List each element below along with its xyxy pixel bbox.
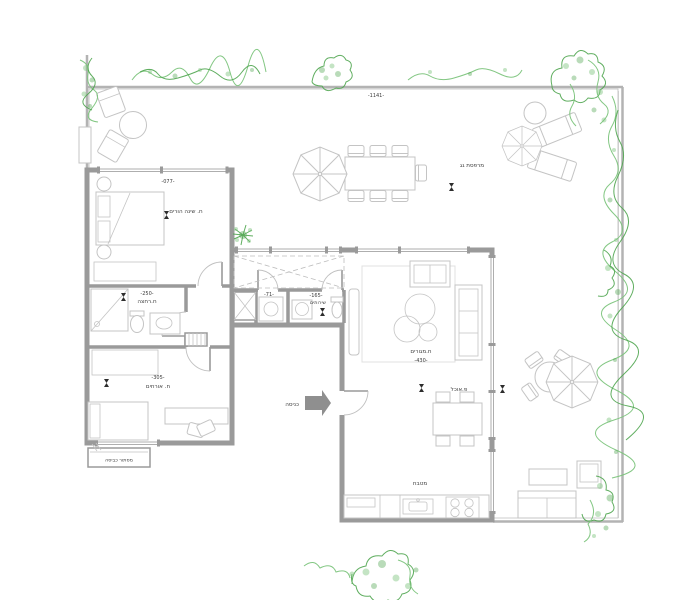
guest-room-code: -305- <box>151 375 164 381</box>
nightstand <box>97 177 111 191</box>
wall-planter <box>79 127 91 163</box>
entrance-arrow-icon <box>305 390 331 416</box>
umbrella-icon <box>293 147 347 201</box>
outdoor-chair <box>416 165 427 181</box>
dining-chair <box>436 392 450 402</box>
toilet-name: שירותים <box>310 301 326 306</box>
terrace-dining-set <box>293 146 427 202</box>
utility-code: -71- <box>264 292 274 298</box>
dining-chair <box>460 392 474 402</box>
outdoor-chair <box>348 146 364 157</box>
washing-machine <box>259 297 283 321</box>
umbrella-icon <box>502 126 542 166</box>
bed <box>88 402 148 440</box>
entrance: כניסה <box>285 390 331 416</box>
terrace-label: מרפסת גג <box>460 163 484 169</box>
outdoor-chair <box>348 191 364 202</box>
living-room-name: ח.מגורים <box>410 349 432 355</box>
steps <box>185 333 207 346</box>
laundry-label: מסתור כביסה <box>105 459 133 464</box>
side-table <box>524 102 546 124</box>
level-marker-icon <box>500 385 505 393</box>
outdoor-chair <box>370 191 386 202</box>
toilet-code: -165- <box>309 293 322 299</box>
round-table <box>120 112 147 139</box>
outdoor-chair <box>521 382 539 401</box>
terrace-dimension: -1141- <box>368 93 385 99</box>
bathroom-code: -250- <box>140 291 153 297</box>
master-bedroom-name: ח. שינה הורים <box>169 209 203 215</box>
terrace-sofa-bottom-right <box>518 461 601 518</box>
outdoor-chair <box>392 146 408 157</box>
terrace-bistro-right <box>521 349 598 408</box>
outdoor-chair <box>370 146 386 157</box>
outdoor-coffee-table <box>529 469 567 485</box>
umbrella-icon <box>546 356 598 408</box>
double-bed <box>96 192 164 245</box>
utility-room <box>259 297 283 321</box>
kitchen-fixtures <box>344 495 489 518</box>
terrace-lounge-top-left <box>96 86 146 163</box>
outdoor-armchair <box>577 461 601 488</box>
dining-name: פ.אוכל <box>451 386 468 393</box>
level-marker-icon <box>449 183 454 191</box>
dining-table <box>433 403 482 435</box>
entrance-label: כניסה <box>285 402 299 408</box>
vanity <box>150 313 180 334</box>
outdoor-chair <box>392 191 408 202</box>
master-bedroom-code: -077- <box>161 179 174 185</box>
shaft <box>234 292 256 320</box>
bathroom-name: ח.רחצה <box>137 299 157 305</box>
desk <box>165 408 228 424</box>
kitchen-name: מטבח <box>413 481 428 487</box>
outdoor-chair <box>96 86 126 118</box>
toilet-bowl <box>131 316 144 333</box>
nightstand <box>97 245 111 259</box>
toilet-tank <box>331 297 343 302</box>
dining-chair <box>460 436 474 446</box>
tall-cabinet <box>349 289 359 355</box>
guest-room-name: ח. אורחים <box>146 384 171 390</box>
potted-plant <box>233 225 253 245</box>
outdoor-dining-table <box>345 157 415 190</box>
living-room-code: -430- <box>414 358 427 364</box>
laundry-screen: מסתור כביסה <box>88 443 150 467</box>
floor-plan-canvas: מסתור כביסה כניסה <box>0 0 700 600</box>
floor-plan-page: מסתור כביסה כניסה <box>0 0 700 600</box>
dining-chair <box>436 436 450 446</box>
toilet-bowl <box>332 302 342 318</box>
